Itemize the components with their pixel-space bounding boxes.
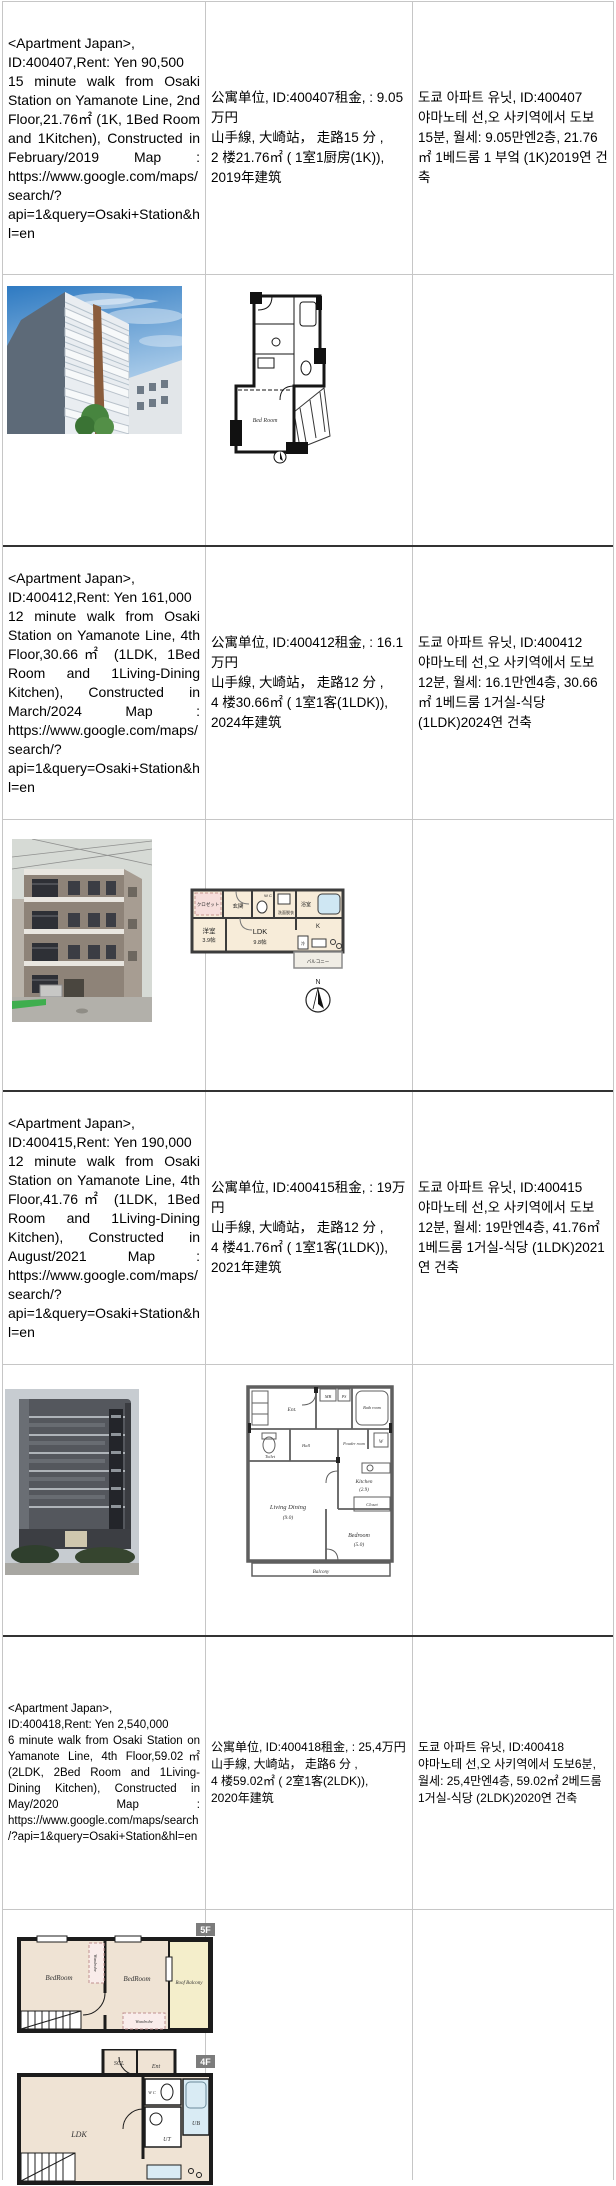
- listing-400412-text-zh: 公寓单位, ID:400412租金, : 16.1万円 山手線, 大崎站， 走路…: [206, 547, 413, 819]
- room-label-wc: W C: [148, 2090, 157, 2095]
- room-label-wc: W C: [264, 893, 272, 898]
- room-label-entry: Ent.: [286, 1407, 296, 1413]
- room-label-balcony: バルコニー: [307, 959, 330, 964]
- room-label-powder-room: Powder room: [342, 1441, 365, 1446]
- listing-400418-text-ko: 도쿄 아파트 유닛, ID:400418 야마노테 선,오 사키역에서 도보6분…: [413, 1637, 613, 1909]
- room-label-entrance: 玄関: [232, 902, 244, 910]
- listing-400418-text-row: <Apartment Japan>, ID:400418,Rent: Yen 2…: [3, 1637, 613, 1909]
- room-label-living-dining: Living Dining: [269, 1504, 307, 1511]
- room-label-western-room: 洋室: [203, 926, 217, 935]
- main-building: [24, 869, 142, 997]
- room-size-western-room: 3.9帖: [202, 936, 216, 944]
- listing-400415-text-en: <Apartment Japan>, ID:400415,Rent: Yen 1…: [3, 1092, 206, 1364]
- listing-text: <Apartment Japan>, ID:400415,Rent: Yen 1…: [8, 1114, 200, 1342]
- room-label-entry: Ent: [151, 2064, 161, 2070]
- room-label-bathroom: Bath room: [363, 1405, 381, 1410]
- floorplan-image: Ent. MB PS Bath room Toilet Hall Powder …: [242, 1379, 400, 1579]
- label-wardrobe-1: Wardrobe: [93, 1954, 98, 1972]
- room-label-closet: Closet: [366, 1502, 378, 1507]
- room-label-toilet: Toilet: [265, 1454, 276, 1459]
- listing-text: 도쿄 아파트 유닛, ID:400412 야마노테 선,오 사키역에서 도보12…: [418, 633, 608, 733]
- listing-block-400415: <Apartment Japan>, ID:400415,Rent: Yen 1…: [3, 1090, 613, 1635]
- listing-text: 公寓单位, ID:400415租金, : 19万円 山手線, 大崎站， 走路12…: [211, 1178, 407, 1278]
- listing-text: 公寓单位, ID:400407租金, : 9.05万円 山手線, 大崎站， 走路…: [211, 88, 407, 188]
- room-size-living-dining: (9.0): [283, 1514, 294, 1521]
- listing-text: 도쿄 아파트 유닛, ID:400418 야마노테 선,오 사키역에서 도보6분…: [418, 1739, 608, 1807]
- room-label-bedroom-2: BedRoom: [123, 1975, 150, 1983]
- room-size-ldk: 9.8帖: [253, 938, 267, 946]
- floorplan-image: Bed Room: [228, 290, 332, 466]
- floor-badge-5f: 5F: [196, 1923, 215, 1936]
- floorplan-5f-image: 5F: [15, 1923, 215, 2035]
- room-label-kitchen: Kitchen: [354, 1479, 372, 1485]
- listing-text: <Apartment Japan>, ID:400412,Rent: Yen 1…: [8, 569, 200, 797]
- compass-icon: [274, 451, 286, 463]
- room-label-balcony: Balcony: [313, 1570, 330, 1575]
- badge-label: 4F: [200, 2057, 211, 2067]
- room-label-hall: Hall: [301, 1443, 311, 1448]
- room-label-ut: UT: [163, 2137, 171, 2143]
- listing-400407-text-ko: 도쿄 아파트 유닛, ID:400407 야마노테 선,오 사키역에서 도보15…: [413, 2, 613, 274]
- room-label-bath: 浴室: [301, 901, 311, 908]
- room-label-washroom: 洗面脱衣: [278, 909, 294, 915]
- compass-n-label: N: [315, 979, 320, 986]
- listing-text: <Apartment Japan>, ID:400418,Rent: Yen 2…: [8, 1701, 200, 1845]
- listing-400412-text-row: <Apartment Japan>, ID:400412,Rent: Yen 1…: [3, 547, 613, 819]
- label-mb: MB: [324, 1394, 332, 1399]
- compass-icon: N: [300, 975, 336, 1015]
- listing-text: 公寓单位, ID:400418租金, : 25,4万円 山手線, 大崎站， 走路…: [211, 1739, 407, 1807]
- stairs: [21, 2153, 75, 2181]
- room-label-ldk: LDK: [70, 2130, 87, 2139]
- room-size-bedroom: (5.0): [354, 1541, 365, 1548]
- listing-400418-image-row: 5F: [3, 1909, 613, 2180]
- listing-text: 도쿄 아파트 유닛, ID:400407 야마노테 선,오 사키역에서 도보15…: [418, 88, 608, 188]
- badge-label: 5F: [200, 1925, 211, 1935]
- room-label-closet: クロゼット: [197, 901, 220, 908]
- listing-400407-text-row: <Apartment Japan>, ID:400407,Rent: Yen 9…: [3, 2, 613, 274]
- listing-400412-text-ko: 도쿄 아파트 유닛, ID:400412 야마노테 선,오 사키역에서 도보12…: [413, 547, 613, 819]
- floorplan-image: クロゼット 玄関 W C 洗面脱衣 浴室 洋室 3.9帖 LDK 9.8帖 K …: [190, 888, 345, 988]
- room-label-bedroom-1: BedRoom: [45, 1974, 72, 1982]
- listing-400415-text-row: <Apartment Japan>, ID:400415,Rent: Yen 1…: [3, 1092, 613, 1364]
- building-photo: [7, 286, 182, 434]
- listing-400407-text-en: <Apartment Japan>, ID:400407,Rent: Yen 9…: [3, 2, 206, 274]
- listing-400412-text-en: <Apartment Japan>, ID:400412,Rent: Yen 1…: [3, 547, 206, 819]
- room-label-ldk: LDK: [253, 927, 268, 936]
- listing-400412-image-row: クロゼット 玄関 W C 洗面脱衣 浴室 洋室 3.9帖 LDK 9.8帖 K …: [3, 819, 613, 1090]
- listing-text: 도쿄 아파트 유닛, ID:400415 야마노테 선,오 사키역에서 도보12…: [418, 1178, 608, 1278]
- label-wardrobe-2: Wardrobe: [135, 2019, 153, 2024]
- listing-400407-text-zh: 公寓单位, ID:400407租金, : 9.05万円 山手線, 大崎站， 走路…: [206, 2, 413, 274]
- room-label-kitchen: K: [316, 924, 320, 930]
- floor-badge-4f: 4F: [196, 2055, 215, 2068]
- listing-text: <Apartment Japan>, ID:400407,Rent: Yen 9…: [8, 34, 200, 243]
- room-label-bedroom: Bed Room: [253, 418, 278, 424]
- label-ps: PS: [341, 1394, 346, 1399]
- listing-400415-text-ko: 도쿄 아파트 유닛, ID:400415 야마노테 선,오 사키역에서 도보12…: [413, 1092, 613, 1364]
- building-photo: [12, 839, 152, 1022]
- stairs: [21, 2011, 81, 2029]
- listing-400407-image-row: Bed Room: [3, 274, 613, 545]
- listing-400418-text-en: <Apartment Japan>, ID:400418,Rent: Yen 2…: [3, 1637, 206, 1909]
- listing-block-400412: <Apartment Japan>, ID:400412,Rent: Yen 1…: [3, 545, 613, 1090]
- floorplan-4f-image: 4F: [15, 2049, 215, 2186]
- apartment-listings-table: <Apartment Japan>, ID:400407,Rent: Yen 9…: [2, 1, 614, 2180]
- listing-400415-image-row: Ent. MB PS Bath room Toilet Hall Powder …: [3, 1364, 613, 1635]
- listing-400418-text-zh: 公寓单位, ID:400418租金, : 25,4万円 山手線, 大崎站， 走路…: [206, 1637, 413, 1909]
- room-label-bedroom: Bedroom: [348, 1533, 370, 1539]
- room-size-kitchen: (2.9): [359, 1488, 369, 1493]
- listing-text: 公寓单位, ID:400412租金, : 16.1万円 山手線, 大崎站， 走路…: [211, 633, 407, 733]
- listing-block-400418: <Apartment Japan>, ID:400418,Rent: Yen 2…: [3, 1635, 613, 2180]
- main-building: [19, 1399, 131, 1549]
- room-label-ub: UB: [192, 2121, 200, 2127]
- room-label-roof-balcony: Roof Balcony: [174, 1981, 203, 1986]
- label-fridge: 冷: [301, 940, 305, 946]
- listing-block-400407: <Apartment Japan>, ID:400407,Rent: Yen 9…: [3, 2, 613, 545]
- room-label-scl: SCL: [114, 2061, 125, 2067]
- listing-400415-text-zh: 公寓单位, ID:400415租金, : 19万円 山手線, 大崎站， 走路12…: [206, 1092, 413, 1364]
- building-photo: [5, 1389, 139, 1575]
